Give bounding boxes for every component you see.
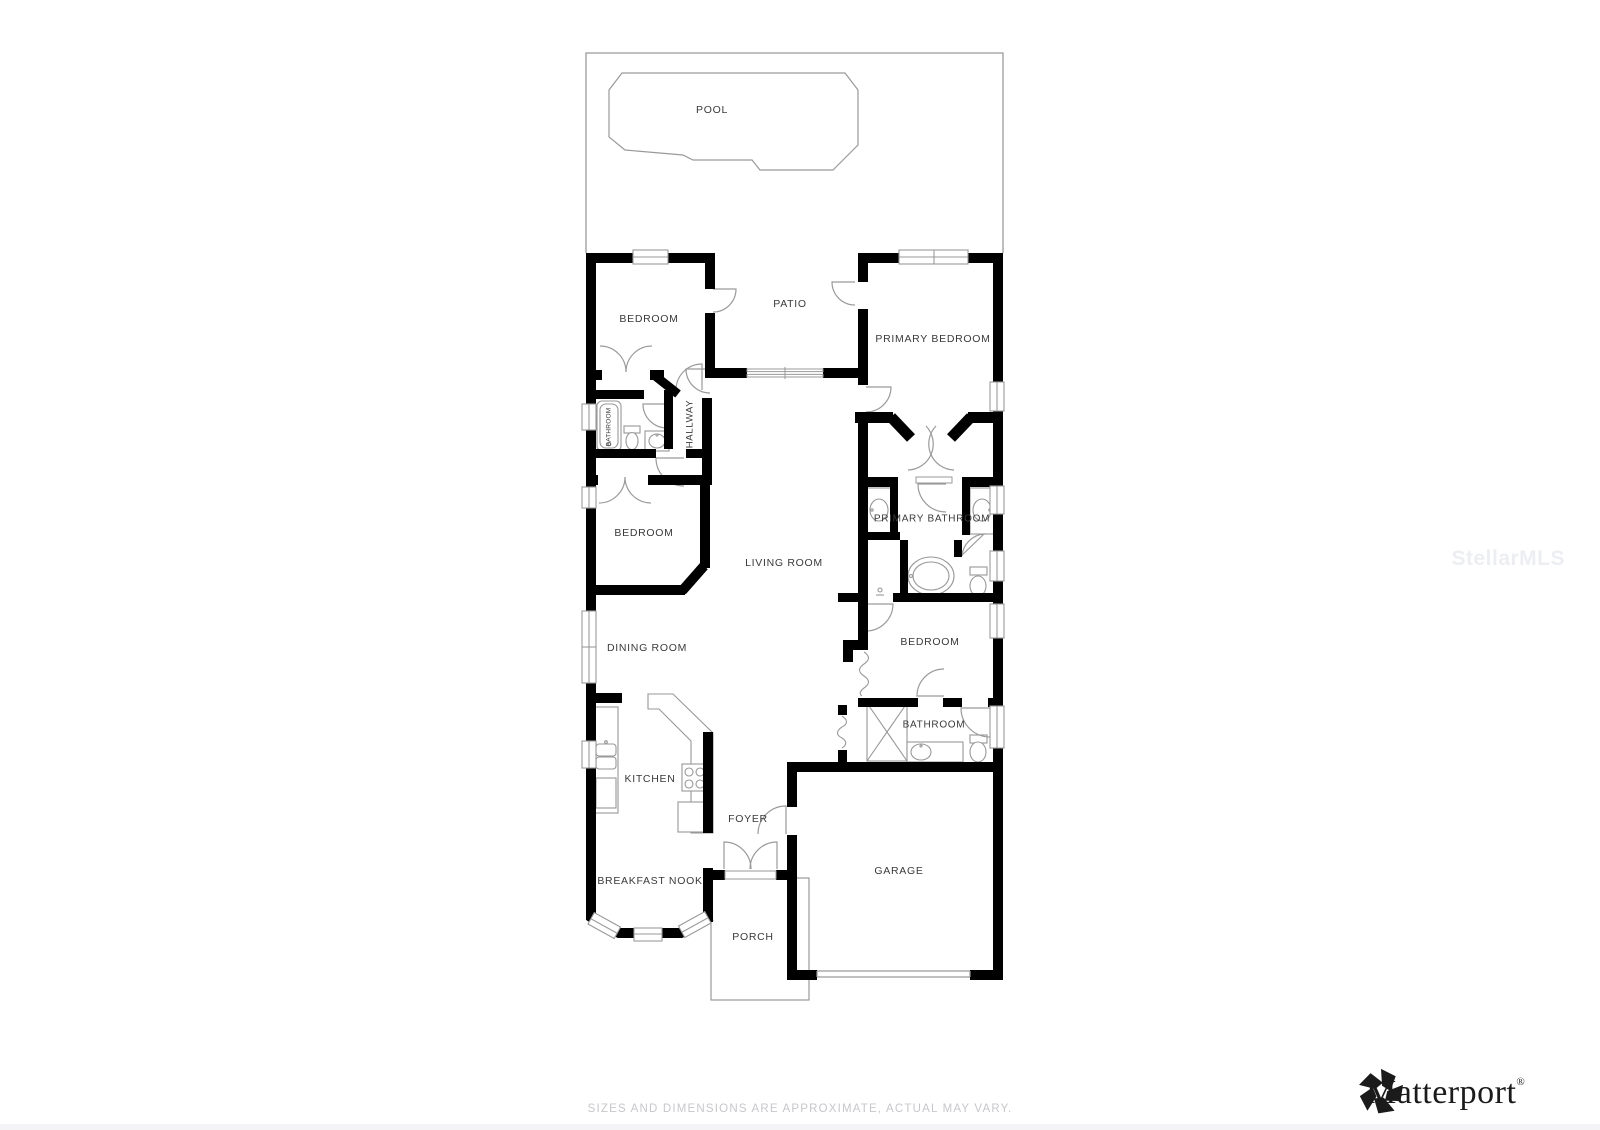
window	[990, 382, 1004, 411]
room-label-pool: POOL	[696, 104, 728, 116]
matterport-logo-text: Matterport	[1366, 1074, 1516, 1111]
door-bedroom1-patio	[713, 289, 736, 312]
front-door-threshold	[725, 871, 776, 879]
room-label-patio: PATIO	[773, 298, 806, 310]
closet-bifold-bedroom2-b	[625, 477, 651, 503]
primary-shower-faucet	[876, 588, 884, 595]
window	[990, 486, 1004, 514]
kitchen-counter-left	[594, 707, 618, 813]
room-label-primary-bedroom: PRIMARY BEDROOM	[875, 333, 990, 345]
primary-vanity-left	[866, 488, 892, 534]
door-primary-patio	[832, 282, 855, 305]
pool-outline	[609, 73, 858, 170]
walls	[586, 253, 1003, 980]
room-label-bathroom-right: BATHROOM	[903, 720, 966, 731]
garage-door	[817, 971, 970, 977]
window	[634, 928, 662, 941]
room-label-garage: GARAGE	[874, 865, 923, 877]
window	[678, 912, 711, 938]
window	[588, 913, 621, 939]
sliding-glass-door	[747, 367, 823, 379]
bottom-edge-strip	[0, 1124, 1600, 1130]
shower-stall-icon	[867, 703, 907, 761]
window	[990, 604, 1004, 638]
room-label-porch: PORCH	[732, 931, 773, 943]
closet-bifold-bedroom1-b	[626, 346, 652, 372]
door-hall-bathroom3	[961, 708, 990, 737]
bathroom-toilet-icon	[970, 735, 987, 762]
closet-bifold-bedroom1-a	[600, 346, 626, 372]
room-label-breakfast-nook: BREAKFAST NOOK	[597, 875, 702, 887]
window	[899, 250, 968, 264]
floor-plan-page: POOL PATIO BEDROOM PRIMARY BEDROOM BATHR…	[0, 0, 1600, 1130]
closet-bifold-bedroom2-a	[599, 477, 625, 503]
room-label-bedroom-top: BEDROOM	[619, 313, 678, 325]
primary-toilet-icon	[970, 567, 987, 596]
room-label-bedroom-middle: BEDROOM	[614, 527, 673, 539]
window	[633, 250, 668, 264]
stellar-mls-watermark: StellarMLS	[1451, 547, 1565, 571]
bathroom-vanity-icon	[907, 742, 963, 762]
toilet-icon	[624, 426, 640, 450]
front-door-right	[750, 842, 777, 869]
room-label-bedroom-right: BEDROOM	[900, 636, 959, 648]
registered-trademark-symbol: ®	[1516, 1076, 1525, 1088]
matterport-wordmark: Matterport®	[1366, 1074, 1525, 1112]
window	[582, 741, 596, 768]
room-label-dining-room: DINING ROOM	[607, 642, 687, 654]
room-label-kitchen: KITCHEN	[625, 773, 676, 785]
window	[582, 404, 596, 430]
disclaimer-text: SIZES AND DIMENSIONS ARE APPROXIMATE, AC…	[588, 1103, 1013, 1115]
window	[990, 706, 1004, 748]
room-label-hallway: HALLWAY	[685, 400, 696, 449]
room-label-foyer: FOYER	[728, 813, 768, 825]
window	[582, 487, 596, 508]
primary-bathtub-icon	[908, 557, 954, 595]
front-door-left	[724, 842, 751, 869]
door-primary-bath	[918, 484, 946, 512]
matterport-logo: Matterport®	[1356, 1068, 1586, 1118]
primary-vestibule-threshold	[916, 477, 952, 483]
door-bedroom1-hall	[676, 364, 702, 390]
room-label-living-room: LIVING ROOM	[745, 557, 823, 569]
window	[582, 611, 596, 683]
door-living-bedroom3	[866, 604, 893, 631]
door-bedroom3-bath	[917, 669, 944, 696]
door-bathroom1	[643, 404, 667, 428]
door-primary-shower	[960, 534, 984, 557]
room-label-hall-bathroom: BATHROOM	[606, 408, 613, 447]
door-living-primary	[866, 387, 891, 412]
room-label-primary-bathroom: PRIMARY BATHROOM	[874, 514, 990, 525]
window	[990, 551, 1004, 581]
